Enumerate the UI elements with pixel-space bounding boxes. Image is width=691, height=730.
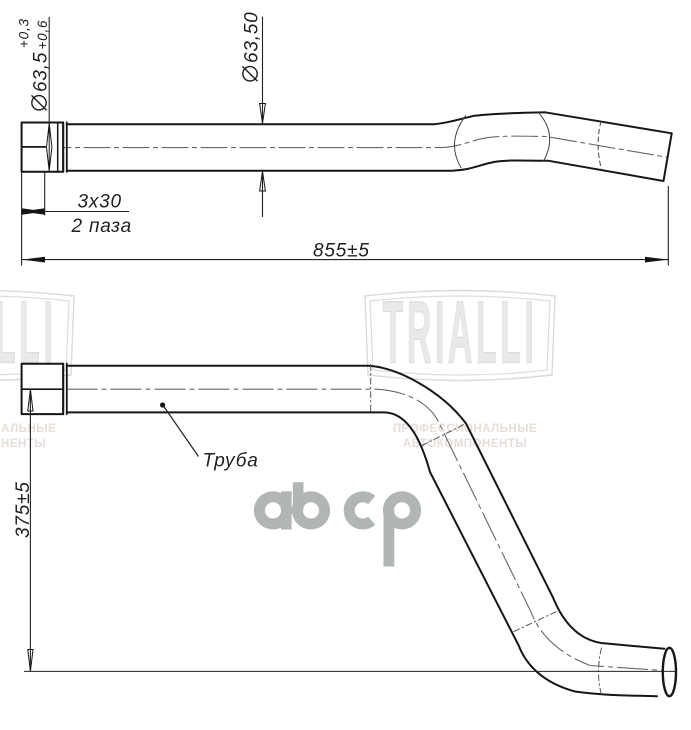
svg-text:+0,6: +0,6 [35,20,50,50]
svg-text:375±5: 375±5 [13,481,34,538]
svg-text:АВТОКОМПОНЕНТЫ: АВТОКОМПОНЕНТЫ [0,438,46,450]
svg-text:855±5: 855±5 [313,241,370,262]
svg-text:63,50: 63,50 [242,11,263,63]
svg-text:Труба: Труба [203,451,259,472]
svg-text:+0,3: +0,3 [17,18,32,48]
svg-text:63,5: 63,5 [31,52,52,92]
svg-text:2 паза: 2 паза [71,216,132,237]
svg-text:ПРОФЕССИОНАЛЬНЫЕ: ПРОФЕССИОНАЛЬНЫЕ [0,423,56,435]
svg-text:3х30: 3х30 [78,192,122,213]
